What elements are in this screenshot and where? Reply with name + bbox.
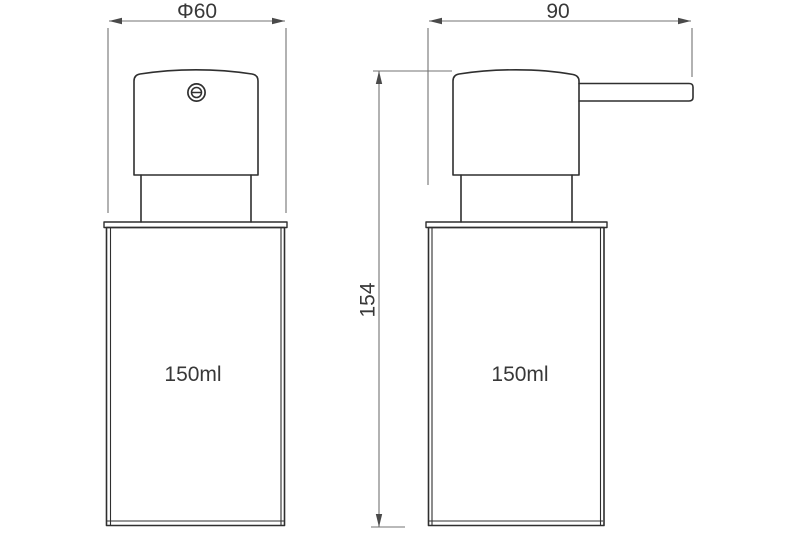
arrow-right-icon xyxy=(272,18,285,24)
drawing-canvas: Φ60 150ml xyxy=(0,0,800,533)
side-view: 90 154 xyxy=(357,0,694,527)
bottle-body: 150ml xyxy=(107,228,285,526)
side-height-dimension: 154 xyxy=(357,71,453,527)
arrow-left-icon xyxy=(109,18,122,24)
front-volume-label: 150ml xyxy=(164,363,221,386)
arrow-up-icon xyxy=(376,71,382,84)
pump-neck xyxy=(141,175,251,222)
pump-spout xyxy=(579,84,693,102)
depth-dimension-label: 90 xyxy=(546,0,569,23)
dispenser-technical-drawing: Φ60 150ml xyxy=(0,0,800,533)
side-depth-dimension: 90 xyxy=(428,0,692,185)
height-dimension-label: 154 xyxy=(357,282,380,317)
side-volume-label: 150ml xyxy=(491,363,548,386)
pump-head xyxy=(453,70,579,175)
arrow-left-icon xyxy=(429,18,442,24)
arrow-down-icon xyxy=(376,514,382,527)
bottle-body: 150ml xyxy=(429,228,605,526)
diameter-dimension-label: Φ60 xyxy=(177,0,217,23)
bottle-rim xyxy=(104,222,287,228)
screw-slot-icon xyxy=(188,84,205,101)
bottle-rim xyxy=(426,222,607,228)
front-view: Φ60 150ml xyxy=(104,0,287,526)
pump-neck xyxy=(461,175,572,222)
pump-head xyxy=(134,70,258,175)
arrow-right-icon xyxy=(678,18,691,24)
